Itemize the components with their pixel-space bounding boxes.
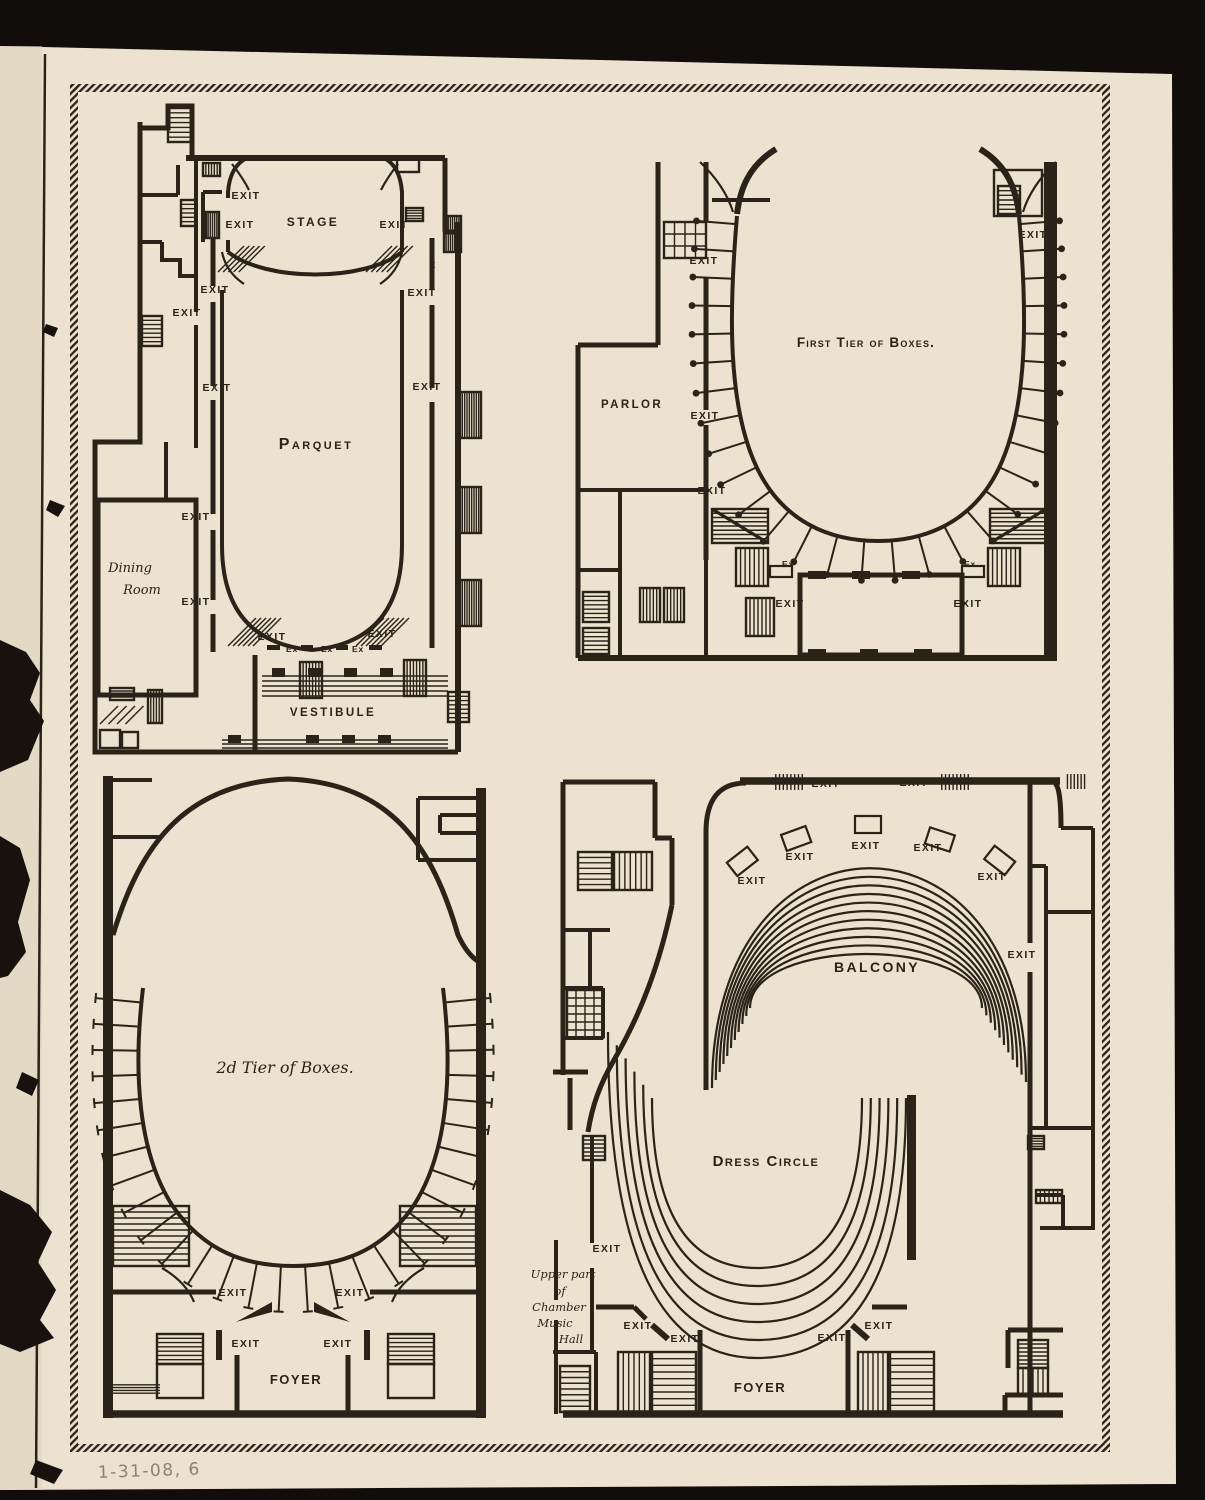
exit-label: EXIT bbox=[671, 1333, 700, 1345]
foyer-label: FOYER bbox=[270, 1372, 322, 1387]
e-label: E bbox=[430, 260, 436, 270]
exit-label: EXIT bbox=[219, 1287, 248, 1299]
exit-label: EXIT bbox=[776, 598, 805, 610]
exit-label: EXIT bbox=[232, 1338, 261, 1350]
exit-label: EXIT bbox=[324, 1338, 353, 1350]
exit-label: EXIT bbox=[900, 777, 929, 789]
dress-circle-end-wall bbox=[907, 1095, 916, 1260]
exit-label: EXIT bbox=[690, 255, 719, 267]
exit-label: EXIT bbox=[201, 284, 230, 296]
exit-label: EXIT bbox=[368, 628, 397, 640]
dress-circle-label: Dress Circle bbox=[713, 1153, 820, 1170]
chamber-line-3: Chamber bbox=[532, 1300, 587, 1314]
exit-label: EXIT bbox=[413, 381, 442, 393]
balcony-label: BALCONY bbox=[834, 959, 920, 975]
exit-label: EXIT bbox=[182, 596, 211, 608]
exit-label: EXIT bbox=[232, 190, 261, 202]
chamber-line-5: Hall bbox=[558, 1332, 584, 1346]
exit-label: EXIT bbox=[624, 1320, 653, 1332]
chamber-line-1: Upper part bbox=[531, 1267, 596, 1281]
exit-label: EXIT bbox=[1019, 229, 1048, 241]
exit-label: EXIT bbox=[914, 842, 943, 854]
dining-room-label-1: Dining bbox=[107, 561, 152, 576]
exit-label: EXIT bbox=[182, 511, 211, 523]
handwritten-date-note: 1-31-08, 6 bbox=[97, 1459, 201, 1483]
second-tier-label: 2d Tier of Boxes. bbox=[215, 1058, 353, 1077]
parquet-label: Parquet bbox=[279, 436, 354, 453]
balcony-foyer-label: FOYER bbox=[734, 1380, 786, 1395]
stage-label: STAGE bbox=[287, 215, 339, 229]
exit-label: EXIT bbox=[786, 851, 815, 863]
parlor-label: PARLOR bbox=[601, 399, 663, 411]
page-scan: STAGE Parquet Dining Room VESTIBULE EXIT… bbox=[0, 0, 1205, 1500]
chamber-line-2: of bbox=[554, 1284, 567, 1298]
parquet-e-label: E bbox=[430, 260, 436, 270]
exit-label: EXIT bbox=[865, 1320, 894, 1332]
second-tier-west-wall bbox=[103, 776, 113, 1418]
exit-label: EXIT bbox=[738, 875, 767, 887]
scanned-program-page: STAGE Parquet Dining Room VESTIBULE EXIT… bbox=[0, 0, 1205, 1500]
exit-label: EXIT bbox=[954, 598, 983, 610]
chamber-line-4: Music bbox=[536, 1316, 573, 1330]
ex-label: Ex bbox=[321, 644, 333, 654]
exit-label: EXIT bbox=[173, 307, 202, 319]
vestibule-label: VESTIBULE bbox=[290, 707, 376, 719]
exit-label: EXIT bbox=[818, 1332, 847, 1344]
first-tier-label: First Tier of Boxes. bbox=[797, 335, 935, 350]
ex-label: Ex bbox=[352, 644, 364, 654]
ex-label: Ex bbox=[286, 644, 298, 654]
exit-label: EXIT bbox=[593, 1243, 622, 1255]
exit-label: EXIT bbox=[978, 871, 1007, 883]
exit-label: EXIT bbox=[380, 219, 409, 231]
exit-label: EXIT bbox=[812, 778, 841, 790]
dining-room-label-2: Room bbox=[122, 583, 161, 598]
exit-label: EXIT bbox=[408, 287, 437, 299]
exit-label: EXIT bbox=[1008, 949, 1037, 961]
exit-label: EXIT bbox=[226, 219, 255, 231]
exit-label: EXIT bbox=[852, 840, 881, 852]
exit-label: EXIT bbox=[336, 1287, 365, 1299]
parquet-ex-labels: ExExEx bbox=[286, 644, 364, 654]
exit-label: EXIT bbox=[258, 631, 287, 643]
exit-label: EXIT bbox=[203, 382, 232, 394]
